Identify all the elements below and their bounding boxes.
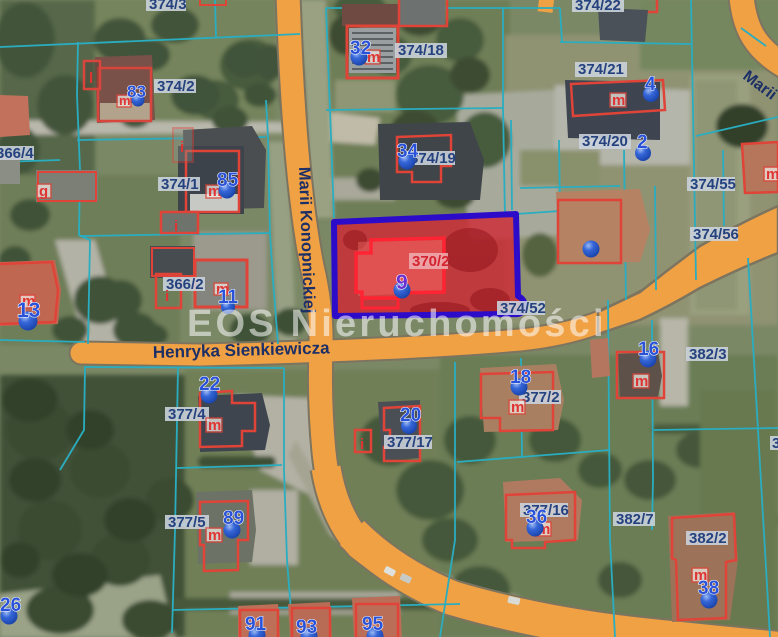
svg-text:16: 16 <box>638 339 659 360</box>
svg-text:374/20: 374/20 <box>582 133 628 150</box>
svg-text:377/5: 377/5 <box>168 514 206 531</box>
svg-text:377/17: 377/17 <box>387 434 433 451</box>
svg-text:34: 34 <box>397 141 419 162</box>
svg-text:3: 3 <box>772 435 778 452</box>
svg-text:m: m <box>766 166 778 183</box>
svg-text:370/2: 370/2 <box>412 253 450 270</box>
svg-text:374/2: 374/2 <box>157 78 195 95</box>
svg-text:366/4: 366/4 <box>0 145 34 162</box>
svg-text:13: 13 <box>17 299 40 322</box>
svg-text:374/1: 374/1 <box>161 176 199 193</box>
svg-text:85: 85 <box>217 170 239 191</box>
svg-text:83: 83 <box>127 82 146 101</box>
svg-text:89: 89 <box>223 508 244 529</box>
svg-text:i: i <box>360 436 364 453</box>
svg-text:26: 26 <box>0 595 21 616</box>
svg-text:382/2: 382/2 <box>689 530 727 547</box>
svg-text:374/55: 374/55 <box>690 176 736 193</box>
svg-text:9: 9 <box>396 271 408 294</box>
svg-text:m: m <box>208 417 221 434</box>
svg-text:18: 18 <box>510 367 531 388</box>
svg-text:38: 38 <box>698 578 719 599</box>
svg-text:22: 22 <box>199 374 220 395</box>
svg-text:20: 20 <box>400 405 421 426</box>
svg-text:374/22: 374/22 <box>575 0 621 14</box>
svg-text:i: i <box>174 218 178 235</box>
svg-text:i: i <box>180 139 184 156</box>
svg-text:374/56: 374/56 <box>693 226 739 243</box>
svg-text:93: 93 <box>296 617 317 637</box>
svg-text:4: 4 <box>645 74 656 95</box>
svg-text:377/2: 377/2 <box>522 389 560 406</box>
svg-text:32: 32 <box>350 38 371 59</box>
svg-text:l: l <box>89 70 93 87</box>
svg-text:g: g <box>39 183 48 200</box>
svg-text:m: m <box>208 527 221 544</box>
svg-text:m: m <box>635 373 648 390</box>
svg-text:m: m <box>511 399 524 416</box>
svg-text:374/21: 374/21 <box>578 61 624 78</box>
svg-text:2: 2 <box>637 132 648 153</box>
svg-text:i: i <box>165 288 169 305</box>
svg-text:382/3: 382/3 <box>689 346 727 363</box>
svg-text:377/4: 377/4 <box>168 406 206 423</box>
svg-text:366/2: 366/2 <box>166 276 204 293</box>
svg-text:91: 91 <box>245 614 267 635</box>
svg-text:374/18: 374/18 <box>398 42 444 59</box>
svg-text:36: 36 <box>526 507 547 528</box>
svg-text:374/3: 374/3 <box>149 0 187 13</box>
svg-text:EOS Nieruchomości: EOS Nieruchomości <box>187 303 607 345</box>
svg-text:m: m <box>612 92 625 109</box>
svg-text:95: 95 <box>362 614 384 635</box>
svg-text:382/7: 382/7 <box>616 511 654 528</box>
